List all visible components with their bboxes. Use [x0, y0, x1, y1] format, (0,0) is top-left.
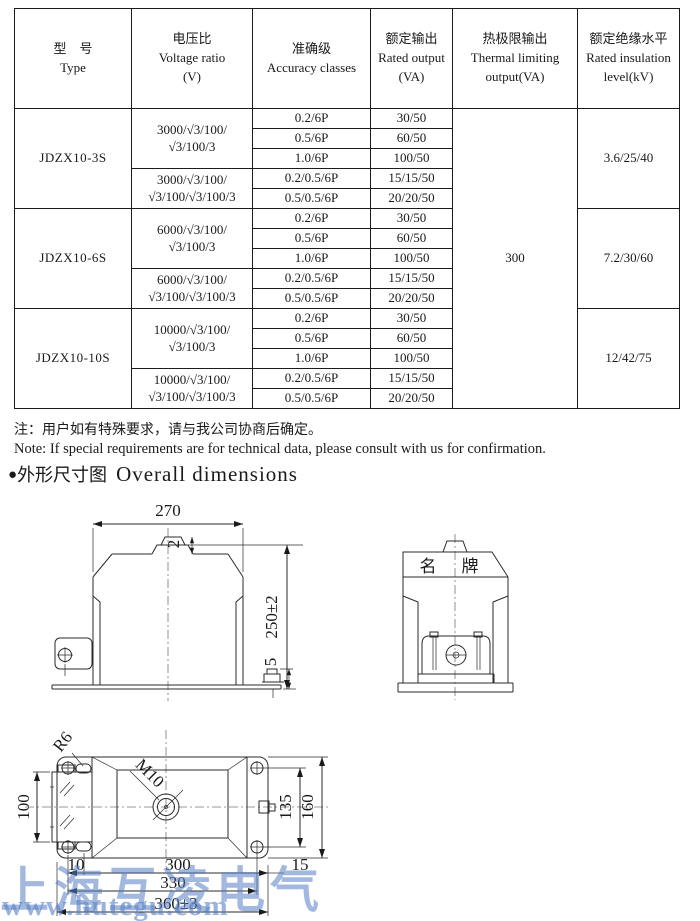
mounting-slot [76, 842, 91, 851]
voltage-line1: 6000/√3/100/ [132, 272, 252, 288]
table-row: JDZX10-6S 6000/√3/100/ √3/100/3 0.2/6P 3… [15, 209, 680, 229]
output-cell: 20/20/50 [371, 389, 453, 409]
nameplate-label: 名 牌 [420, 557, 483, 576]
voltage-line2: √3/100/3 [132, 239, 252, 255]
voltage-line2: √3/100/√3/100/3 [132, 189, 252, 205]
accuracy-cell: 0.5/6P [253, 329, 371, 349]
voltage-cell: 6000/√3/100/ √3/100/√3/100/3 [132, 269, 253, 309]
voltage-line1: 3000/√3/100/ [132, 122, 252, 138]
bullet-icon: ● [8, 467, 17, 483]
dim-left-box-label: 100 [14, 794, 33, 820]
output-cell: 15/15/50 [371, 269, 453, 289]
header-thermal-en: Thermal limiting [453, 50, 577, 67]
voltage-cell: 3000/√3/100/ √3/100/3 [132, 109, 253, 169]
table-row: JDZX10-10S 10000/√3/100/ √3/100/3 0.2/6P… [15, 309, 680, 329]
output-cell: 100/50 [371, 349, 453, 369]
dim-slot-span-label: 300 [165, 855, 191, 874]
header-accuracy: 准确级 Accuracy classes [253, 9, 371, 109]
dim-thread-label: M10 [132, 755, 168, 791]
insulation-cell: 3.6/25/40 [578, 109, 680, 209]
document-page: 型 号 Type 电压比 Voltage ratio (V) 准确级 Accur… [0, 0, 700, 921]
output-cell: 60/50 [371, 229, 453, 249]
bottom-bolt [262, 669, 284, 682]
output-cell: 30/50 [371, 209, 453, 229]
front-view-drawing: 270 2 250±2 5 [40, 498, 370, 713]
header-row: 型 号 Type 电压比 Voltage ratio (V) 准确级 Accur… [15, 9, 680, 109]
voltage-line1: 10000/√3/100/ [132, 372, 252, 388]
header-insulation-en: Rated insulation [578, 50, 679, 67]
header-type-en: Type [15, 60, 131, 77]
section-title-en: Overall dimensions [116, 462, 298, 486]
header-rated-cn: 额定输出 [371, 31, 452, 48]
side-view-drawing: 名 牌 [390, 532, 530, 707]
header-insulation: 额定绝缘水平 Rated insulation level(kV) [578, 9, 680, 109]
accuracy-cell: 1.0/6P [253, 149, 371, 169]
header-insulation-en2: level(kV) [578, 69, 679, 86]
output-cell: 60/50 [371, 329, 453, 349]
accuracy-cell: 1.0/6P [253, 249, 371, 269]
header-voltage-en: Voltage ratio [132, 50, 252, 67]
accuracy-cell: 0.2/0.5/6P [253, 269, 371, 289]
type-cell: JDZX10-10S [15, 309, 132, 409]
accuracy-cell: 0.5/6P [253, 129, 371, 149]
voltage-cell: 10000/√3/100/ √3/100/3 [132, 309, 253, 369]
m10-bolt [153, 790, 183, 820]
voltage-cell: 10000/√3/100/ √3/100/√3/100/3 [132, 369, 253, 409]
note-cn: 注：用户如有特殊要求，请与我公司协商后确定。 [14, 422, 546, 440]
voltage-line1: 6000/√3/100/ [132, 222, 252, 238]
accuracy-cell: 0.2/0.5/6P [253, 169, 371, 189]
header-voltage: 电压比 Voltage ratio (V) [132, 9, 253, 109]
accuracy-cell: 0.5/6P [253, 229, 371, 249]
accuracy-cell: 0.5/0.5/6P [253, 189, 371, 209]
header-thermal-cn: 热极限输出 [453, 31, 577, 48]
header-accuracy-cn: 准确级 [253, 41, 370, 58]
output-cell: 60/50 [371, 129, 453, 149]
dim-corner-radius-label: R6 [49, 728, 76, 755]
type-cell: JDZX10-6S [15, 209, 132, 309]
header-thermal: 热极限输出 Thermal limiting output(VA) [453, 9, 578, 109]
terminal-block [418, 632, 494, 683]
accuracy-cell: 1.0/6P [253, 349, 371, 369]
notes-block: 注：用户如有特殊要求，请与我公司协商后确定。 Note: If special … [14, 422, 546, 459]
voltage-line1: 10000/√3/100/ [132, 322, 252, 338]
output-cell: 20/20/50 [371, 189, 453, 209]
body-outline [92, 757, 247, 858]
section-title-cn: 外形尺寸图 [17, 465, 107, 485]
output-cell: 30/50 [371, 309, 453, 329]
header-rated-output: 额定输出 Rated output (VA) [371, 9, 453, 109]
voltage-line1: 3000/√3/100/ [132, 172, 252, 188]
output-cell: 20/20/50 [371, 289, 453, 309]
note-en: Note: If special requirements are for te… [14, 440, 546, 459]
output-cell: 100/50 [371, 149, 453, 169]
output-cell: 100/50 [371, 249, 453, 269]
voltage-cell: 6000/√3/100/ √3/100/3 [132, 209, 253, 269]
dim-width-label: 270 [155, 501, 181, 520]
accuracy-cell: 0.2/6P [253, 209, 371, 229]
dim-bolt-label: 5 [261, 658, 280, 667]
header-accuracy-en: Accuracy classes [253, 60, 370, 77]
output-cell: 15/15/50 [371, 169, 453, 189]
section-title: ●外形尺寸图Overall dimensions [8, 461, 298, 487]
accuracy-cell: 0.2/6P [253, 309, 371, 329]
dim-bump-label: 2 [164, 540, 183, 549]
insulation-cell: 12/42/75 [578, 309, 680, 409]
accuracy-cell: 0.2/6P [253, 109, 371, 129]
dim-overall-depth-label: 160 [298, 794, 317, 820]
spec-table: 型 号 Type 电压比 Voltage ratio (V) 准确级 Accur… [14, 8, 680, 409]
table-row: JDZX10-3S 3000/√3/100/ √3/100/3 0.2/6P 3… [15, 109, 680, 129]
mounting-bracket [55, 638, 92, 669]
header-voltage-unit: (V) [132, 69, 252, 86]
header-type: 型 号 Type [15, 9, 132, 109]
dim-height-label: 250±2 [262, 595, 281, 638]
voltage-cell: 3000/√3/100/ √3/100/√3/100/3 [132, 169, 253, 209]
header-thermal-en2: output(VA) [453, 69, 577, 86]
voltage-line2: √3/100/√3/100/3 [132, 289, 252, 305]
header-rated-unit: (VA) [371, 69, 452, 86]
voltage-line2: √3/100/3 [132, 139, 252, 155]
type-cell: JDZX10-3S [15, 109, 132, 209]
accuracy-cell: 0.5/0.5/6P [253, 389, 371, 409]
voltage-line2: √3/100/3 [132, 339, 252, 355]
insulation-cell: 7.2/30/60 [578, 209, 680, 309]
output-cell: 15/15/50 [371, 369, 453, 389]
header-insulation-cn: 额定绝缘水平 [578, 31, 679, 48]
dim-edge-offset-label: 15 [292, 855, 309, 874]
header-type-cn: 型 号 [15, 41, 131, 58]
voltage-line2: √3/100/√3/100/3 [132, 389, 252, 405]
dim-hole-span-h-label: 330 [160, 873, 186, 892]
header-rated-en: Rated output [371, 50, 452, 67]
thermal-cell: 300 [453, 109, 578, 409]
accuracy-cell: 0.5/0.5/6P [253, 289, 371, 309]
dim-overall-width-label: 360±3 [154, 894, 197, 913]
dim-hole-offset-label: 10 [68, 855, 85, 874]
accuracy-cell: 0.2/0.5/6P [253, 369, 371, 389]
output-cell: 30/50 [371, 109, 453, 129]
header-voltage-cn: 电压比 [132, 31, 252, 48]
bottom-view-drawing: R6 M10 100 135 [20, 725, 340, 921]
dim-hole-span-v-label: 135 [276, 794, 295, 820]
